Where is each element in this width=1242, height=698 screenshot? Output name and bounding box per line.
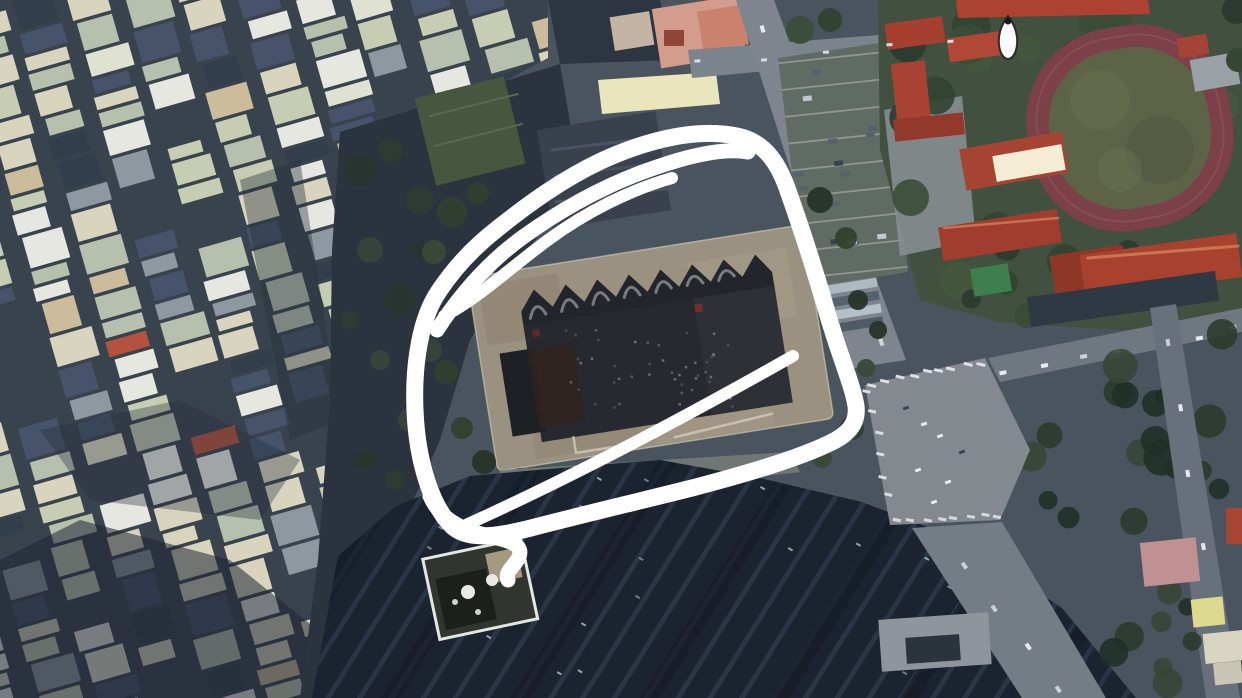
- pink-building-se: [1140, 537, 1200, 587]
- cream-building-se: [1203, 630, 1242, 664]
- red-roof-small-top: [664, 30, 684, 46]
- compound-tank-2: [486, 574, 498, 586]
- green-turf-patch: [970, 263, 1012, 297]
- roof-red-dot-1: [694, 303, 703, 312]
- satellite-map-viewport: [0, 0, 1242, 698]
- infield-mottle-1: [1070, 70, 1130, 130]
- pink-building-c: [610, 11, 655, 51]
- compound-dot-2: [475, 609, 481, 615]
- roof-red-dot-2: [532, 329, 540, 337]
- infield-mottle-3: [1098, 148, 1142, 192]
- gray-u-courtyard: [905, 634, 961, 664]
- compound-tank-1: [461, 585, 475, 599]
- white-building-corner: [1213, 661, 1242, 686]
- yellow-building-se: [1191, 596, 1226, 627]
- satellite-map-canvas[interactable]: [0, 0, 1242, 698]
- red-sliver-right-edge: [1226, 508, 1242, 544]
- red-building-west-wing: [891, 60, 931, 123]
- pin-cap: [1005, 18, 1012, 25]
- compound-dot-1: [452, 599, 458, 605]
